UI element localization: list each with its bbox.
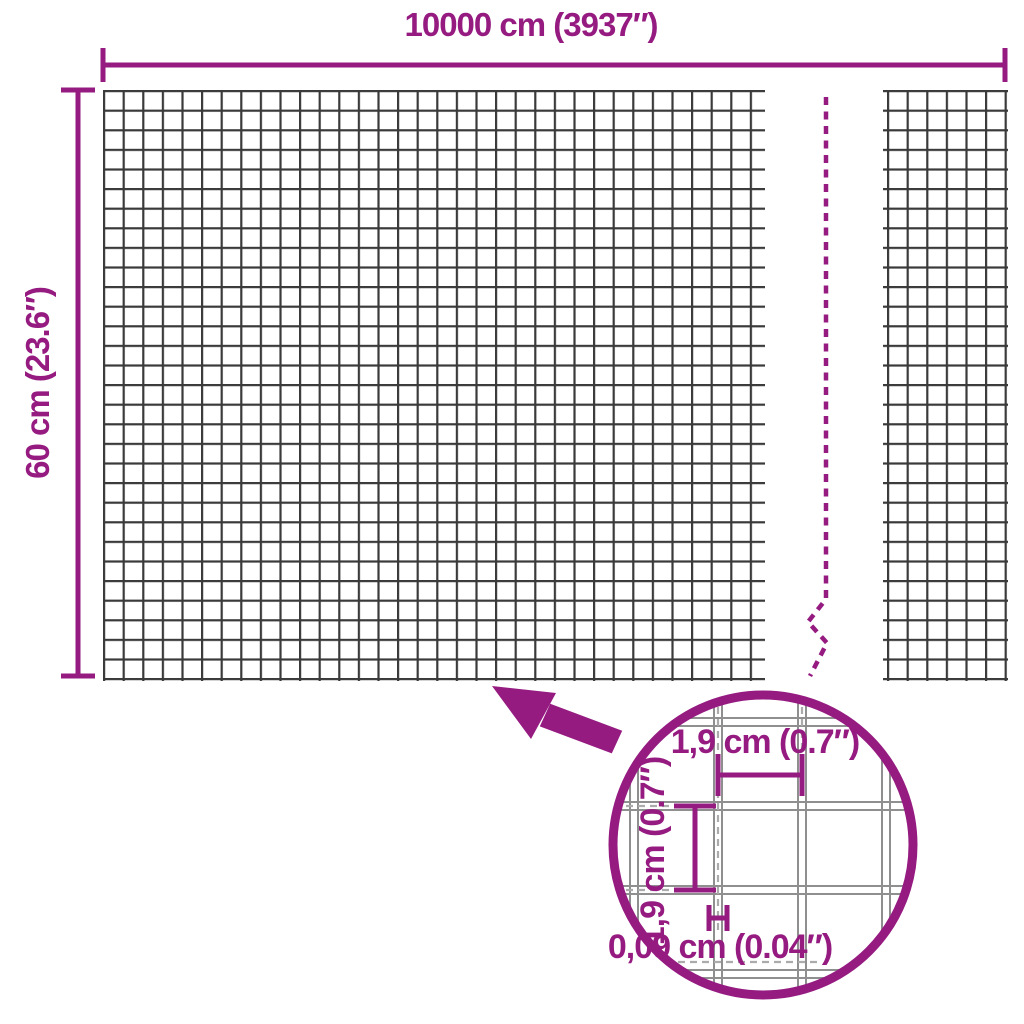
- mesh-panel-main: [103, 90, 765, 681]
- mesh-panel-continuation: [883, 90, 1008, 681]
- width-dimension-line: [103, 48, 1005, 82]
- height-dimension-line: [61, 90, 95, 676]
- mesh-width-label: 1,9 cm (0.7″): [671, 723, 860, 761]
- magnifier-arrow-icon: [492, 686, 622, 753]
- wire-thickness-label: 0,09 cm (0.04″): [608, 928, 832, 966]
- mesh-height-label: 1,9 cm (0.7″): [634, 757, 672, 946]
- width-dimension-label: 10000 cm (3937″): [405, 6, 658, 43]
- height-dimension-label: 60 cm (23.6″): [19, 287, 56, 479]
- product-dimension-diagram: 10000 cm (3937″) 60 cm (23.6″) 1,9 cm (0…: [0, 0, 1024, 1024]
- break-line: [808, 97, 827, 676]
- diagram-canvas: 10000 cm (3937″) 60 cm (23.6″) 1,9 cm (0…: [0, 0, 1024, 1024]
